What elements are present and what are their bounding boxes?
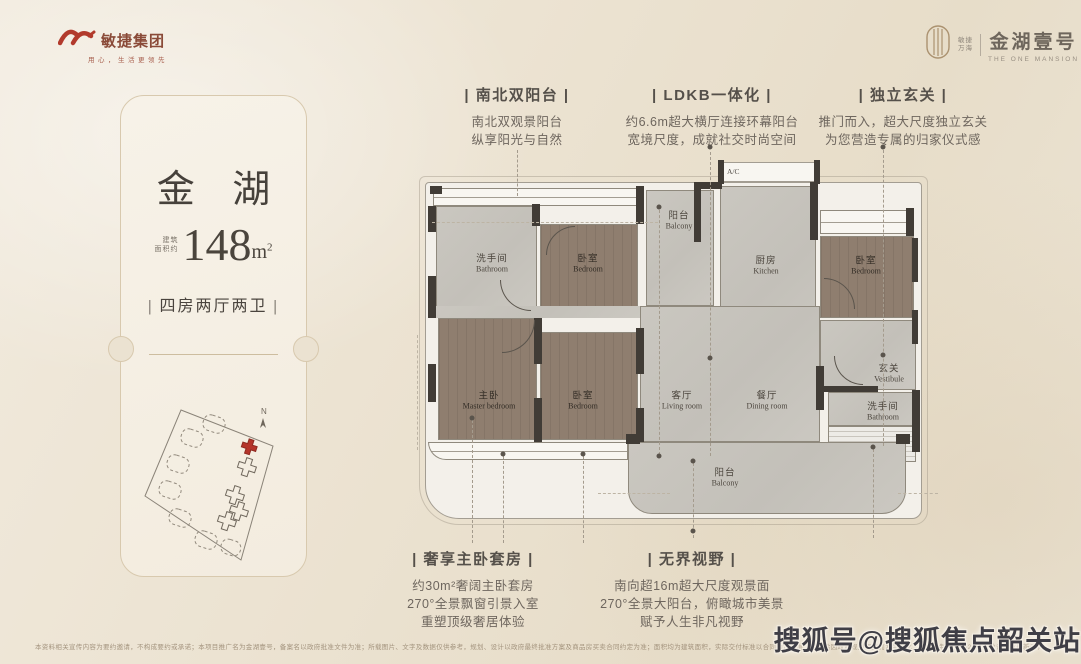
svg-text:N: N	[261, 407, 267, 416]
wall-segment	[718, 160, 724, 184]
annotation-line: 赋予人生非凡视野	[640, 613, 744, 631]
room-label-dining-room: 餐厅Dining room	[746, 388, 787, 411]
room-label-bathroom-1: 洗手间Bathroom	[476, 251, 508, 274]
leader-line	[583, 456, 584, 543]
room-living-dining	[640, 306, 820, 442]
annotation-title: | 独立玄关 |	[859, 84, 948, 105]
leader-dot	[581, 452, 586, 457]
group-name: 敏捷集团	[101, 30, 165, 51]
room-label-bedroom-east: 卧室Bedroom	[851, 253, 881, 276]
bay-window-east	[820, 210, 914, 234]
developer-line2: 万海	[958, 45, 973, 53]
area-unit-base: m	[251, 241, 267, 263]
area-value: 148	[182, 222, 251, 268]
room-label-living-room: 客厅Living room	[662, 388, 702, 411]
group-logo: 敏捷集团 用心，生活更领先	[58, 24, 168, 64]
leader-dot	[657, 454, 662, 459]
annotation-line: 约6.6m超大横厅连接环幕阳台	[626, 113, 799, 131]
annotation-line: 约30m²奢阔主卧套房	[412, 577, 533, 595]
room-label-bedroom-2: 卧室Bedroom	[568, 388, 598, 411]
room-bedroom-2	[540, 332, 638, 440]
leader-dot	[657, 205, 662, 210]
project-logo: 敏捷 万海 金湖壹号 THE ONE MANSION	[925, 24, 1079, 65]
project-badge-icon	[925, 24, 951, 65]
wall-segment	[906, 208, 914, 236]
area-unit: m2	[251, 241, 272, 264]
leader-dot	[881, 353, 886, 358]
wall-segment	[912, 390, 920, 452]
dimension-line	[898, 493, 938, 494]
leader-dot	[691, 459, 696, 464]
wall-segment	[822, 386, 878, 392]
project-subtitle: THE ONE MANSION	[988, 56, 1079, 63]
unit-title: 金 湖	[121, 158, 306, 213]
card-notch-left	[108, 336, 134, 362]
room-label-master-bedroom: 主卧Master bedroom	[463, 388, 516, 411]
wall-segment	[534, 398, 542, 442]
logo-divider	[980, 34, 981, 56]
leader-line	[472, 420, 473, 543]
wall-segment	[534, 318, 542, 364]
annotation-title: | LDKB一体化 |	[652, 84, 772, 105]
wall-segment	[428, 364, 436, 402]
annotation-dual-balcony: | 南北双阳台 | 南北双观景阳台 纵享阳光与自然	[464, 84, 569, 149]
leader-dot	[501, 452, 506, 457]
annotation-view: | 无界视野 | 南向超16m超大尺度观景面 270°全景大阳台，俯瞰城市美景 …	[600, 548, 784, 631]
layout-badge: | 四房两厅两卫 |	[121, 292, 306, 316]
leader-dot	[708, 356, 713, 361]
room-label-vestibule: 玄关Vestibule	[874, 361, 904, 384]
annotation-line: 纵享阳光与自然	[471, 131, 562, 149]
swoosh-logo-icon	[58, 24, 96, 51]
leader-line	[517, 150, 518, 196]
dimension-line	[417, 335, 418, 450]
group-tagline: 用心，生活更领先	[88, 54, 168, 64]
room-label-kitchen: 厨房Kitchen	[753, 253, 778, 276]
room-label-balcony-north: 阳台Balcony	[666, 208, 693, 231]
room-label-bedroom-1: 卧室Bedroom	[573, 251, 603, 274]
leader-dot	[881, 145, 886, 150]
dimension-line	[598, 493, 670, 494]
leader-dot	[470, 416, 475, 421]
wall-segment	[636, 328, 644, 374]
annotation-title: | 奢享主卧套房 |	[412, 548, 534, 569]
wall-segment	[912, 310, 918, 344]
leader-line	[659, 205, 660, 455]
leader-line	[693, 463, 694, 538]
annotation-title: | 南北双阳台 |	[464, 84, 569, 105]
wall-segment	[694, 184, 701, 242]
wall-segment	[810, 182, 818, 240]
annotation-ldkb: | LDKB一体化 | 约6.6m超大横厅连接环幕阳台 宽境尺度，成就社交时尚空…	[626, 84, 799, 149]
compass-icon: N	[260, 407, 267, 428]
wall-segment	[896, 434, 910, 444]
wall-segment	[912, 238, 918, 282]
area-prefix-line1: 建筑	[162, 236, 178, 245]
highlighted-unit-marker	[240, 437, 259, 456]
floor-plan: A/C	[400, 160, 935, 535]
wall-segment	[430, 186, 442, 194]
annotation-line: 270°全景大阳台，俯瞰城市美景	[600, 595, 784, 613]
annotation-title: | 无界视野 |	[648, 548, 737, 569]
annotation-line: 推门而入，超大尺度独立玄关	[818, 113, 987, 131]
site-plan: N	[133, 368, 293, 568]
annotation-line: 南北双观景阳台	[471, 113, 562, 131]
annotation-line: 270°全景飘窗引景入室	[407, 595, 539, 613]
annotation-line: 为您营造专属的归家仪式感	[825, 131, 981, 149]
dimension-line	[432, 222, 658, 223]
card-notch-right	[293, 336, 319, 362]
room-label-balcony-south: 阳台Balcony	[712, 465, 739, 488]
card-divider	[149, 354, 278, 355]
unit-card: 金 湖 建筑 面积约 148 m2 | 四房两厅两卫 |	[120, 95, 307, 577]
watermark: 搜狐号@搜狐焦点韶关站	[774, 619, 1081, 658]
area-prefix: 建筑 面积约	[154, 236, 178, 254]
leader-dot	[708, 145, 713, 150]
wall-segment	[626, 434, 640, 444]
annotation-master-suite: | 奢享主卧套房 | 约30m²奢阔主卧套房 270°全景飘窗引景入室 重塑顶级…	[407, 548, 539, 631]
ac-label: A/C	[727, 167, 815, 176]
area-prefix-line2: 面积约	[154, 245, 178, 254]
leader-dot	[691, 529, 696, 534]
bay-window-southwest	[428, 442, 628, 460]
unit-area: 建筑 面积约 148 m2	[121, 222, 306, 268]
leader-line	[503, 456, 504, 543]
annotation-vestibule: | 独立玄关 | 推门而入，超大尺度独立玄关 为您营造专属的归家仪式感	[818, 84, 987, 149]
area-unit-sup: 2	[267, 241, 273, 253]
ac-platform: A/C	[718, 162, 816, 182]
wall-segment	[428, 276, 436, 318]
room-balcony-south	[628, 442, 906, 514]
wall-segment	[428, 206, 436, 232]
leader-line	[710, 152, 711, 456]
project-name: 金湖壹号	[990, 27, 1078, 54]
corridor	[436, 306, 640, 318]
leader-line	[873, 449, 874, 538]
developer-line1: 敏捷	[958, 37, 973, 45]
poster: 敏捷集团 用心，生活更领先 敏捷 万海 金湖壹号 THE ONE MANSION…	[0, 0, 1081, 664]
developer-names: 敏捷 万海	[958, 37, 973, 53]
wall-segment	[636, 186, 644, 224]
wall-segment	[814, 160, 820, 184]
leader-dot	[871, 445, 876, 450]
annotation-line: 重塑顶级奢居体验	[421, 613, 525, 631]
leader-line	[883, 150, 884, 446]
annotation-line: 南向超16m超大尺度观景面	[614, 577, 770, 595]
